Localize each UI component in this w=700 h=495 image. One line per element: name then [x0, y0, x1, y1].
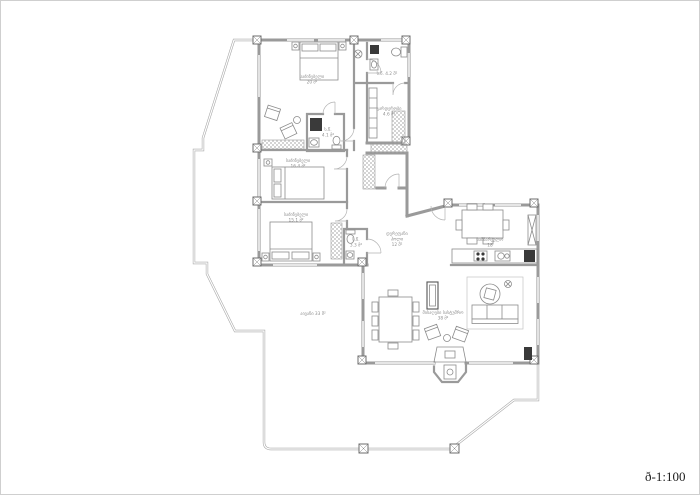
dining-table-symbol — [372, 290, 419, 349]
room-label-wardrobe-area: 4.6 მ² — [383, 112, 395, 118]
bathroom-fixtures — [370, 45, 407, 70]
wardrobe-hatch — [331, 223, 342, 259]
room-label-hall-2: ჰოლი — [391, 238, 404, 243]
room-label-terrace: აივანი 33 მ² — [300, 311, 326, 317]
room-label-bathroom-mid-area: 4.1 მ² — [322, 133, 334, 139]
armchair-symbol — [280, 123, 297, 139]
armchair-symbol — [264, 105, 280, 120]
room-label-bedroom-top-name: საძინებელი — [300, 75, 325, 80]
door-leaf — [524, 347, 532, 360]
room-label-bedroom-mid-name: საძინებელი — [286, 159, 311, 164]
room-label-bedroom-low-area: 15.1 მ² — [289, 218, 304, 224]
bed-symbol — [262, 222, 320, 261]
ceiling-light-symbol — [354, 50, 362, 58]
insulated-wall-hatch — [371, 144, 407, 153]
floor-plan: საძინებელი 20 მ² ს.წ. 4.2 მ² გარდერობი 4… — [1, 1, 700, 495]
room-label-bathroom-top: ს.წ. 4.2 მ² — [377, 71, 398, 77]
sofa-symbol — [472, 305, 518, 324]
floor-lamp-symbol — [505, 281, 512, 288]
room-label-bathroom-mid-name: ს.წ. — [324, 128, 331, 133]
wardrobe-unit-symbol — [369, 88, 377, 138]
terrace-column — [359, 444, 368, 453]
side-table-symbol — [444, 335, 451, 342]
wardrobe-hatch — [262, 140, 304, 149]
drawing-sheet: საძინებელი 20 მ² ს.წ. 4.2 მ² გარდერობი 4… — [0, 0, 700, 495]
coffee-table-symbol — [480, 284, 500, 304]
room-label-bedroom-top-area: 20 მ² — [307, 80, 318, 86]
room-label-wardrobe-name: გარდერობი — [376, 107, 402, 112]
cabinet-symbol — [427, 282, 438, 309]
room-label-hall-3: 12 მ² — [392, 242, 403, 248]
room-label-wc-area: 3.3 მ² — [350, 243, 362, 249]
room-label-living-name: მისაღები სასტუმრო — [422, 311, 464, 316]
room-label-kitchen-name: სამზარეულო — [477, 238, 504, 243]
room-label-hall-1: დერეფანი — [386, 232, 408, 237]
room-label-kitchen-area: 18 — [487, 243, 493, 249]
fireplace-symbol — [434, 347, 466, 379]
shaft-hatch — [363, 155, 375, 189]
terrace-column — [450, 444, 459, 453]
room-label-bedroom-low-name: საძინებელი — [284, 213, 309, 218]
armchair-symbol — [424, 324, 440, 340]
armchair-symbol — [452, 326, 468, 342]
side-table-symbol — [294, 117, 301, 124]
room-label-bedroom-mid-area: 16.4 მ² — [291, 164, 306, 170]
room-label-wc-name: ს.წ. — [352, 238, 359, 243]
room-label-living-area: 38 მ² — [438, 316, 449, 322]
scale-label: ð-1:100 — [645, 469, 685, 484]
